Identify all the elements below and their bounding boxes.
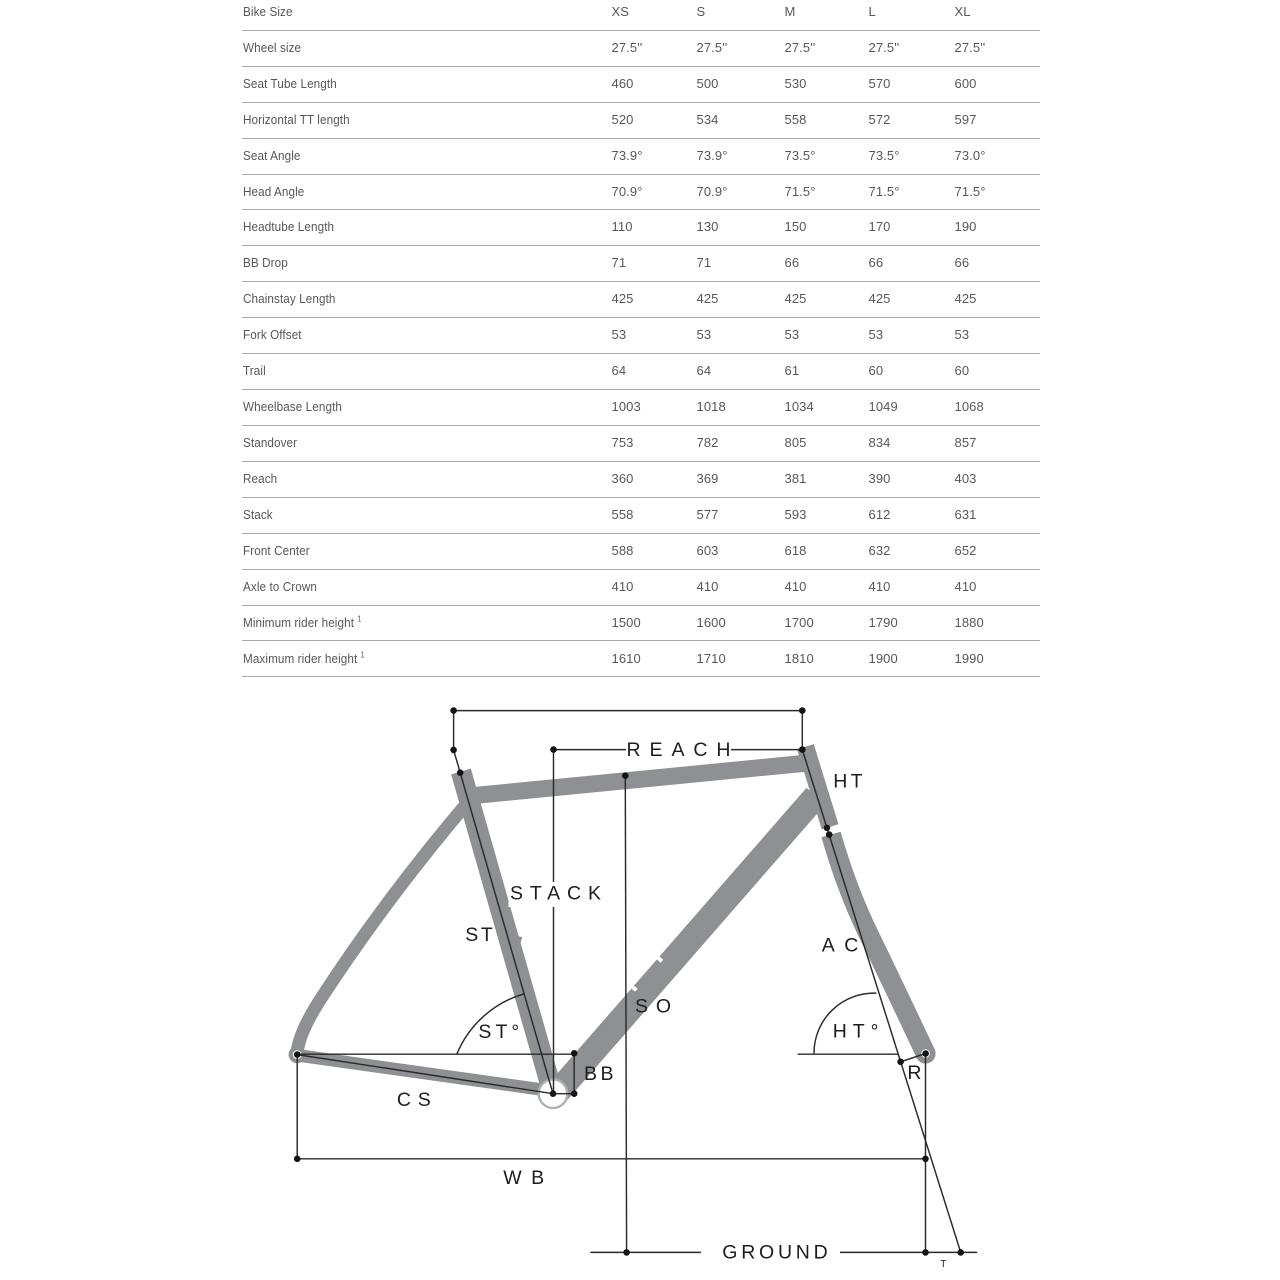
svg-text:T: T — [940, 1259, 946, 1270]
svg-text:CS: CS — [397, 1089, 431, 1111]
svg-text:AC: AC — [822, 935, 859, 957]
svg-text:BB: BB — [584, 1063, 614, 1085]
svg-text:ST: ST — [465, 924, 493, 946]
svg-text:WB: WB — [503, 1167, 544, 1189]
svg-text:R: R — [907, 1062, 921, 1084]
svg-text:HT: HT — [833, 771, 862, 793]
svg-text:HT°: HT° — [833, 1021, 879, 1043]
svg-text:ST°: ST° — [478, 1021, 519, 1043]
